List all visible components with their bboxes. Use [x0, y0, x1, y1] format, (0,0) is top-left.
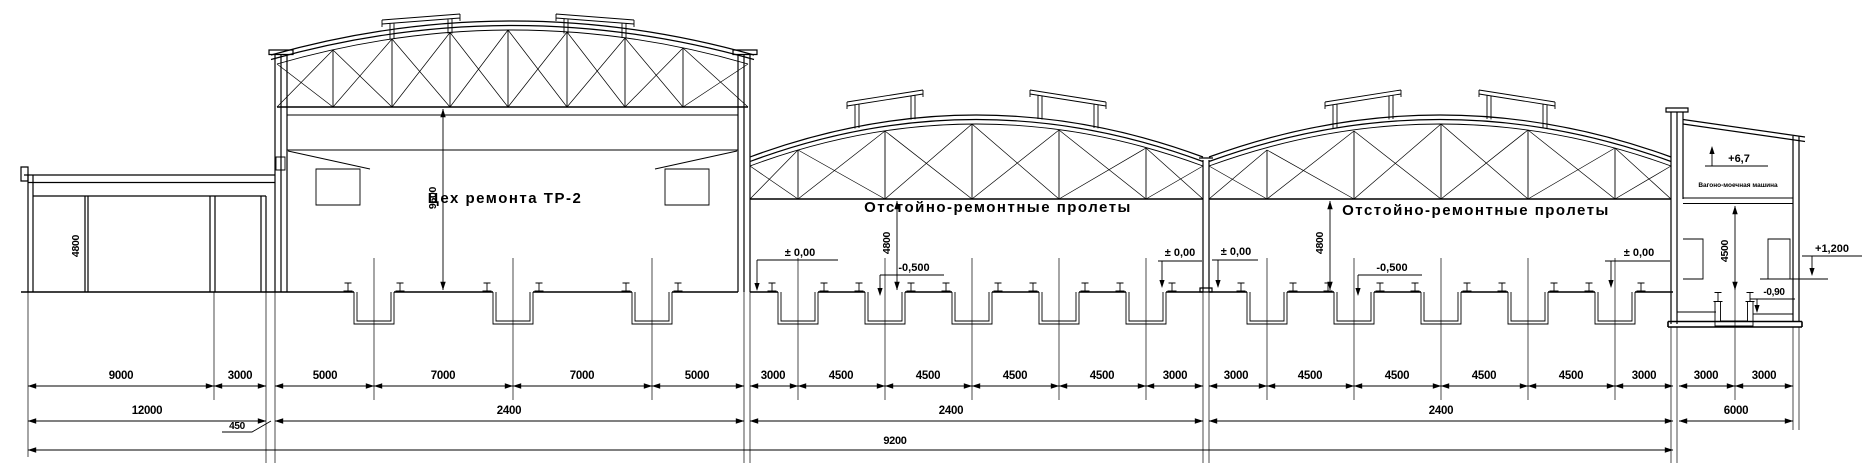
hall-truss-verticals [333, 30, 683, 107]
washer-bay-section: 4500 Вагоно-моечная машина [1666, 108, 1828, 327]
annex-section: 4800 [21, 157, 287, 292]
dim-label: 4500 [1298, 370, 1322, 382]
elevation-marks: ± 0,00 ± 0,00 ± 0,00 ± 0,00 -0,500 -0,50… [754, 146, 1862, 313]
dim-label: 3000 [1694, 370, 1718, 382]
washer-pit-rails [1714, 293, 1755, 302]
hall-crane-haunches [288, 151, 737, 169]
plus1200-mark-arrow [1809, 268, 1814, 276]
valley-column [1199, 158, 1213, 292]
minus090-mark-leader [1750, 299, 1795, 305]
plus67-mark-label: +6,7 [1728, 153, 1750, 165]
dim-label: 3000 [761, 370, 785, 382]
dim-label: 9000 [109, 370, 133, 382]
minus090-mark-arrow [1754, 305, 1759, 313]
dim-label: 7000 [570, 370, 594, 382]
dim-label: 7000 [431, 370, 455, 382]
span2-roof-slab [1209, 115, 1671, 162]
zero-mark-1-label: ± 0,00 [785, 247, 816, 259]
plus67-mark-arrow [1709, 146, 1714, 154]
span2-top-chord [1209, 124, 1671, 166]
dim-label: 3000 [1163, 370, 1187, 382]
dim-label: 3000 [1632, 370, 1656, 382]
zero-mark-1-arrow [754, 283, 759, 291]
dim-label: 4500 [1385, 370, 1409, 382]
span1-section: 4800 Отстойно-ремонтные пролеты [750, 90, 1213, 324]
dim-label: 4500 [916, 370, 940, 382]
hall-wall-caps [269, 50, 757, 55]
zero-mark-2-label: ± 0,00 [1165, 247, 1196, 259]
dim-label: 3000 [1224, 370, 1248, 382]
washer-equipment-blocks [1683, 239, 1790, 279]
minus0500-mark-2-leader [1358, 275, 1422, 288]
zero-mark-3-label: ± 0,00 [1221, 246, 1252, 258]
zero-mark-1-leader [757, 260, 838, 283]
zero-mark-4-arrow [1608, 280, 1613, 288]
dim-label: 2400 [1429, 405, 1453, 417]
dim-label: 3000 [228, 370, 252, 382]
washer-title: Вагоно-моечная машина [1698, 182, 1778, 189]
hall-truss-top-chord [277, 30, 748, 64]
dimension-row-2: 12000 2400 2400 2400 6000 450 [28, 405, 1793, 432]
offset-450-label: 450 [229, 421, 246, 432]
dim-label: 6000 [1724, 405, 1748, 417]
annex-height-label: 4800 [70, 234, 82, 257]
span2-height-label: 4800 [1314, 231, 1326, 254]
dim-label: 4500 [1090, 370, 1114, 382]
minus0500-mark-1-leader [880, 275, 944, 288]
annex-parapet [21, 167, 28, 181]
zero-mark-2-leader [1158, 261, 1202, 280]
plus1200-mark-leader [1802, 256, 1862, 268]
span2-roof-monitors [1325, 90, 1555, 128]
hall-roof-slab [271, 21, 754, 60]
annex-walls [28, 175, 266, 292]
dim-label: 5000 [685, 370, 709, 382]
boundary-axes [28, 290, 1799, 463]
hall-walls [275, 54, 750, 292]
minus0500-mark-1-label: -0,500 [898, 262, 929, 274]
zero-mark-2-arrow [1159, 280, 1164, 288]
annex-roof [24, 175, 275, 196]
washer-ceiling [1683, 198, 1793, 204]
dim-label: 2400 [939, 405, 963, 417]
minus0500-mark-2-label: -0,500 [1376, 262, 1407, 274]
span1-title: Отстойно-ремонтные пролеты [864, 199, 1132, 216]
dim-label: 12000 [132, 405, 162, 417]
zero-mark-3-leader [1212, 260, 1258, 280]
minus090-mark-label: -0,90 [1763, 287, 1785, 298]
washer-height-label: 4500 [1719, 239, 1731, 262]
hall-title: Цех ремонта ТР-2 [428, 190, 583, 207]
dim-label: 4500 [1003, 370, 1027, 382]
pit-axes [374, 258, 1615, 400]
zero-mark-3-arrow [1215, 280, 1220, 288]
span1-roof-monitors [847, 90, 1106, 129]
washer-roof [1683, 120, 1805, 142]
hall-ceiling-band [287, 115, 738, 150]
washer-right-wall [1793, 136, 1799, 322]
span1-height-label: 4800 [881, 231, 893, 254]
dim-label: 4500 [1559, 370, 1583, 382]
dim-label: 3000 [1752, 370, 1776, 382]
axis-lines [28, 258, 1799, 463]
total-dim-label: 9200 [883, 435, 906, 447]
depot-section-drawing: 4800 9600 Цех ремонта ТР-2 4800 Отстойн [0, 0, 1866, 465]
dim-label: 2400 [497, 405, 521, 417]
drawing-viewport: 4800 9600 Цех ремонта ТР-2 4800 Отстойн [0, 0, 1866, 465]
minus0500-mark-2-arrow [1355, 288, 1360, 296]
dim-label: 4500 [829, 370, 853, 382]
plus1200-mark-label: +1,200 [1815, 243, 1849, 255]
washer-center-pit [1715, 302, 1753, 326]
span2-title: Отстойно-ремонтные пролеты [1342, 202, 1610, 219]
span1-top-chord [750, 124, 1203, 166]
dim-label: 4500 [1472, 370, 1496, 382]
dim-label: 5000 [313, 370, 337, 382]
zero-mark-4-label: ± 0,00 [1624, 247, 1655, 259]
minus0500-mark-1-arrow [877, 288, 882, 296]
